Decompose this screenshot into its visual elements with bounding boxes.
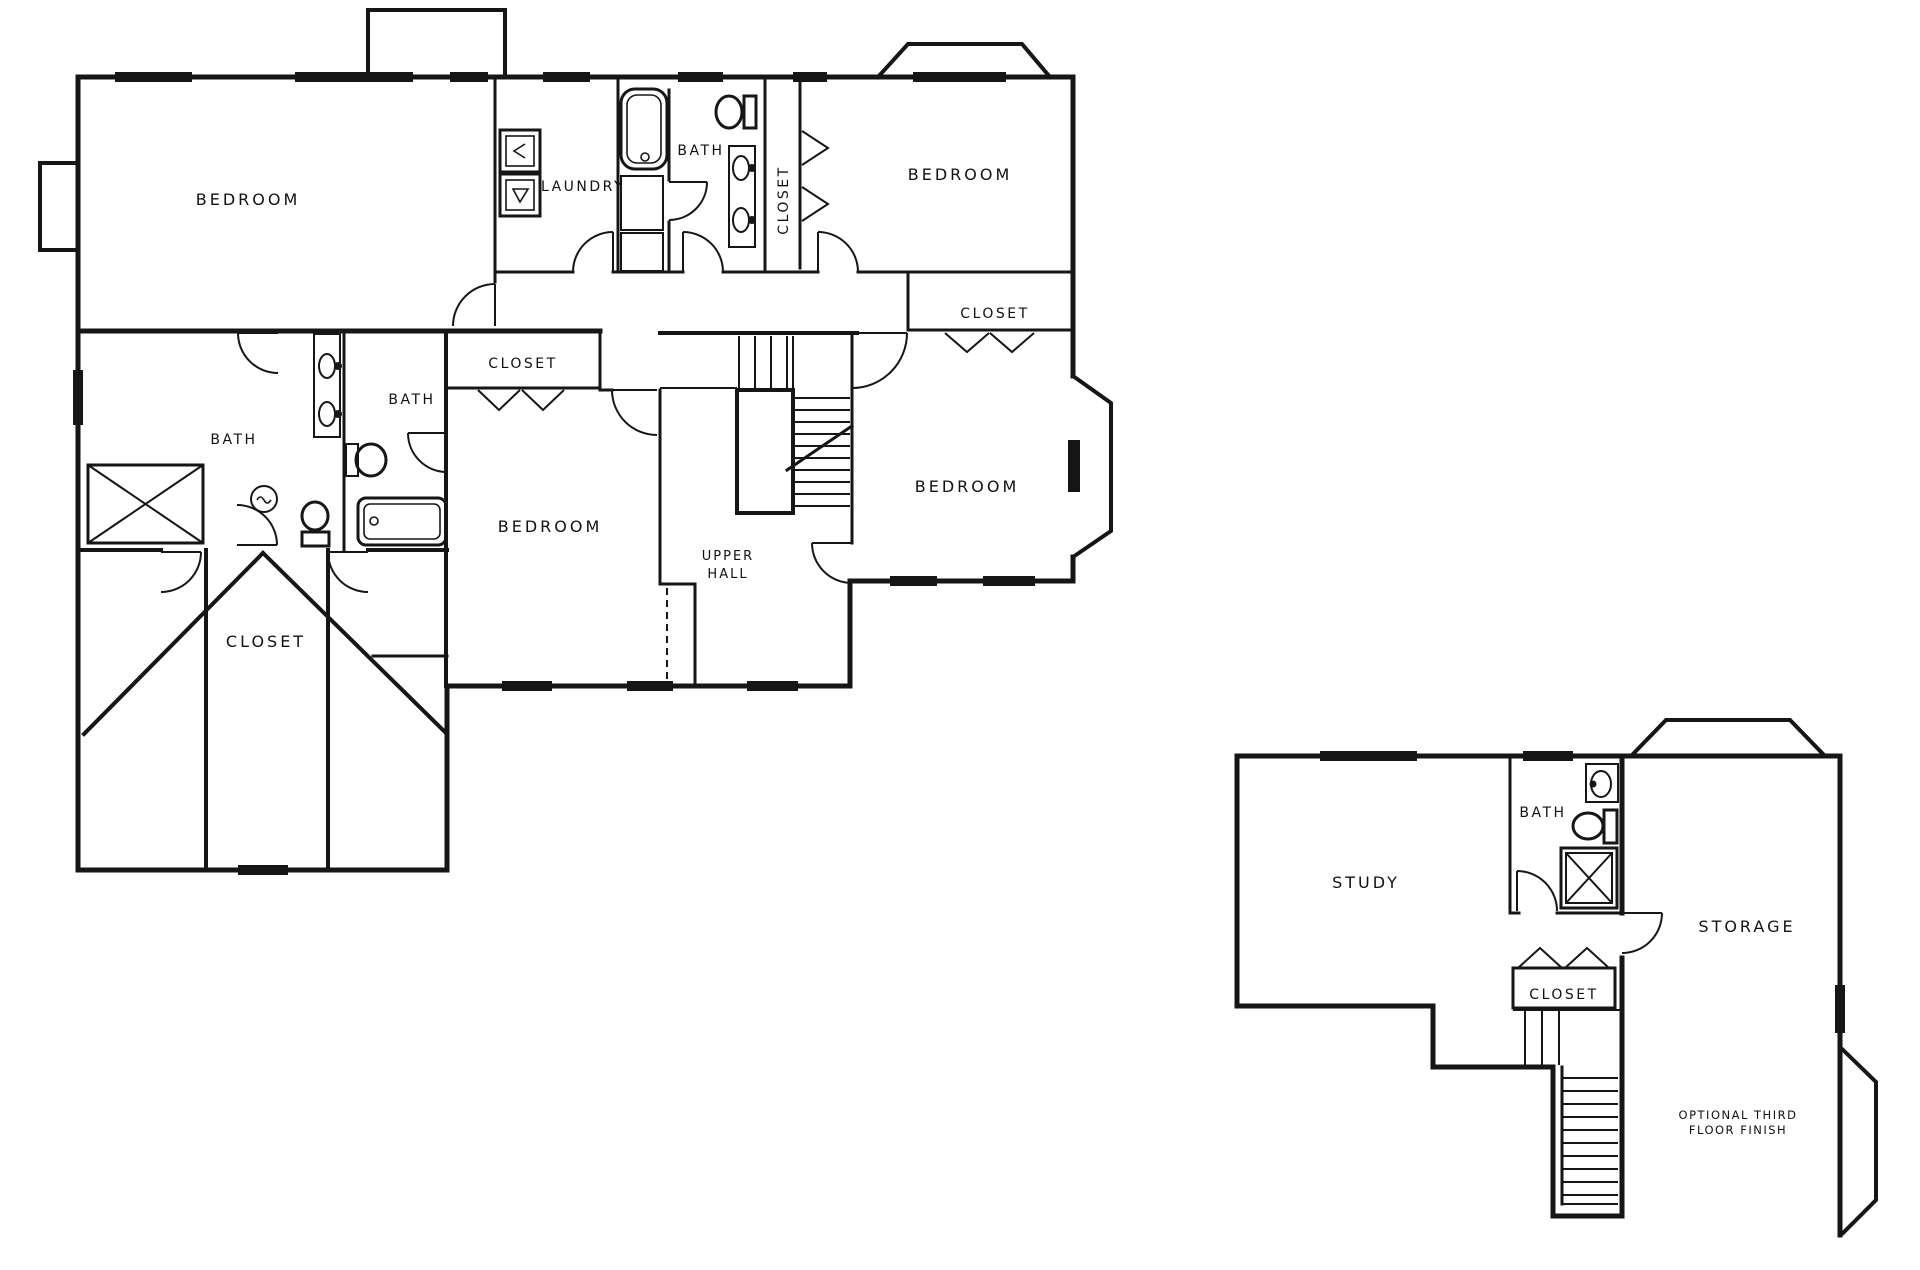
label-storage: STORAGE bbox=[1698, 917, 1795, 936]
floor-plan-page: BEDROOM LAUNDRY BATH CLOSET BEDROOM CLOS… bbox=[0, 0, 1920, 1270]
door-attic-left bbox=[161, 552, 201, 592]
label-study: STUDY bbox=[1332, 873, 1400, 892]
door-bedroom-top-right bbox=[818, 232, 858, 272]
bathtub-icon bbox=[358, 498, 446, 545]
label-bath-third: BATH bbox=[1519, 805, 1566, 821]
linen-cabinet bbox=[621, 176, 663, 230]
main-stairs bbox=[737, 336, 852, 513]
label-closet-center: CLOSET bbox=[488, 356, 557, 372]
sink-icon bbox=[319, 354, 335, 378]
door-bath-top-inner bbox=[669, 182, 707, 220]
sink-icon bbox=[733, 156, 749, 180]
stair-break-line bbox=[787, 426, 852, 470]
label-bath-small: BATH bbox=[388, 392, 435, 408]
laundry-appliances bbox=[500, 130, 540, 216]
sink-icon bbox=[319, 402, 335, 426]
door-bath-small bbox=[408, 433, 447, 472]
door-upper-hall bbox=[812, 543, 852, 583]
label-closet-vertical: CLOSET bbox=[776, 165, 792, 234]
double-vanity bbox=[314, 334, 340, 437]
label-upper-hall-2: HALL bbox=[707, 567, 748, 582]
stair-well bbox=[737, 390, 793, 513]
sink-icon bbox=[733, 208, 749, 232]
dormer-left bbox=[368, 10, 505, 75]
label-note-2: FLOOR FINISH bbox=[1689, 1123, 1787, 1137]
door-bedroom-right bbox=[852, 333, 907, 388]
label-laundry: LAUNDRY bbox=[541, 179, 625, 195]
label-bedroom-right: BEDROOM bbox=[915, 477, 1020, 496]
door-laundry bbox=[573, 232, 613, 272]
room-labels: BEDROOM LAUNDRY BATH CLOSET BEDROOM CLOS… bbox=[196, 143, 1798, 1137]
bath-top-fixtures bbox=[621, 89, 756, 271]
third-floor-bath-fixtures bbox=[1561, 764, 1618, 908]
toilet-icon bbox=[1573, 813, 1603, 839]
label-closet-top-right: CLOSET bbox=[960, 306, 1029, 322]
door-storage bbox=[1622, 913, 1662, 953]
door-bath-left bbox=[238, 333, 278, 373]
storage-angled-wall bbox=[1840, 1047, 1876, 1233]
door-bedroom-center bbox=[612, 390, 657, 435]
label-bath-left: BATH bbox=[210, 432, 257, 448]
label-bedroom-center: BEDROOM bbox=[498, 517, 603, 536]
bath-small-fixtures bbox=[346, 444, 446, 545]
label-bedroom-top-right: BEDROOM bbox=[908, 165, 1013, 184]
floor-plan-canvas: BEDROOM LAUNDRY BATH CLOSET BEDROOM CLOS… bbox=[0, 0, 1920, 1270]
door-bath-third bbox=[1517, 871, 1557, 911]
second-floor-outer-walls bbox=[40, 10, 1111, 870]
toilet-icon bbox=[302, 502, 328, 530]
label-upper-hall-1: UPPER bbox=[702, 549, 754, 564]
label-bedroom-top-left: BEDROOM bbox=[196, 190, 301, 209]
toilet-icon bbox=[716, 96, 742, 128]
label-note-1: OPTIONAL THIRD bbox=[1679, 1108, 1798, 1122]
door-attic-right bbox=[328, 552, 368, 592]
third-floor-outer-walls bbox=[1237, 720, 1876, 1235]
linen-cabinet bbox=[621, 233, 663, 271]
label-bath-top: BATH bbox=[677, 143, 724, 159]
label-closet-walk-in: CLOSET bbox=[226, 632, 306, 651]
door-bedroom-top-left bbox=[453, 284, 495, 326]
label-closet-third: CLOSET bbox=[1529, 987, 1598, 1003]
dormer-storage bbox=[1633, 720, 1823, 754]
third-floor-stairs bbox=[1513, 1010, 1622, 1204]
chimney-bump bbox=[40, 163, 78, 250]
door-bath-top bbox=[683, 232, 723, 272]
